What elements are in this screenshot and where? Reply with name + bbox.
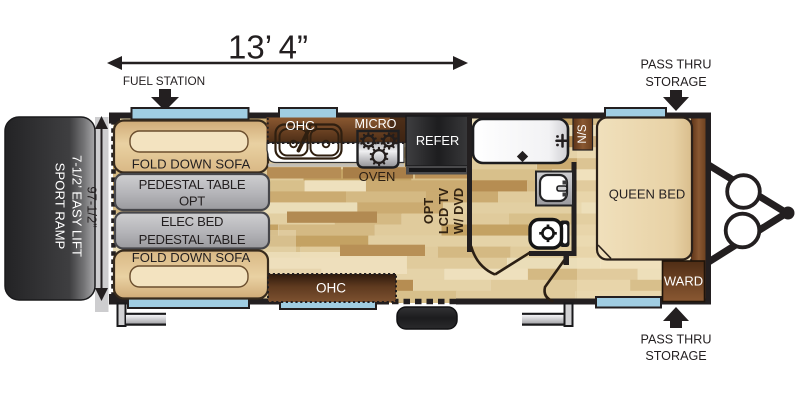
svg-text:FOLD DOWN SOFA: FOLD DOWN SOFA: [132, 250, 251, 265]
svg-text:WARD: WARD: [664, 274, 703, 289]
svg-text:MICRO: MICRO: [355, 117, 397, 131]
svg-text:OPT: OPT: [179, 194, 205, 209]
svg-text:FOLD DOWN SOFA: FOLD DOWN SOFA: [132, 157, 251, 172]
svg-text:OVEN: OVEN: [359, 169, 396, 184]
svg-text:PEDESTAL TABLE: PEDESTAL TABLE: [139, 177, 246, 192]
svg-text:STORAGE: STORAGE: [645, 75, 706, 89]
svg-text:OHC: OHC: [316, 281, 346, 296]
svg-text:ELEC BED: ELEC BED: [161, 214, 223, 229]
svg-text:QUEEN BED: QUEEN BED: [609, 187, 686, 202]
svg-text:PASS THRU: PASS THRU: [641, 58, 712, 72]
svg-text:FUEL STATION: FUEL STATION: [123, 74, 205, 88]
svg-text:97-1/2”: 97-1/2”: [85, 186, 100, 227]
svg-text:SPORT RAMP: SPORT RAMP: [53, 163, 68, 250]
svg-text:13’ 4”: 13’ 4”: [228, 29, 308, 66]
svg-text:N/S: N/S: [577, 124, 589, 144]
svg-text:PEDESTAL TABLE: PEDESTAL TABLE: [139, 232, 246, 247]
svg-text:PASS THRU: PASS THRU: [641, 333, 712, 347]
svg-text:OHC: OHC: [285, 118, 315, 133]
svg-text:W/ DVD: W/ DVD: [451, 188, 466, 234]
svg-text:LCD TV: LCD TV: [436, 187, 451, 234]
svg-text:OPT: OPT: [421, 198, 436, 224]
svg-text:STORAGE: STORAGE: [645, 349, 706, 363]
svg-text:7-1/2’ EASY LIFT: 7-1/2’ EASY LIFT: [70, 155, 85, 257]
svg-text:REFER: REFER: [416, 133, 459, 148]
